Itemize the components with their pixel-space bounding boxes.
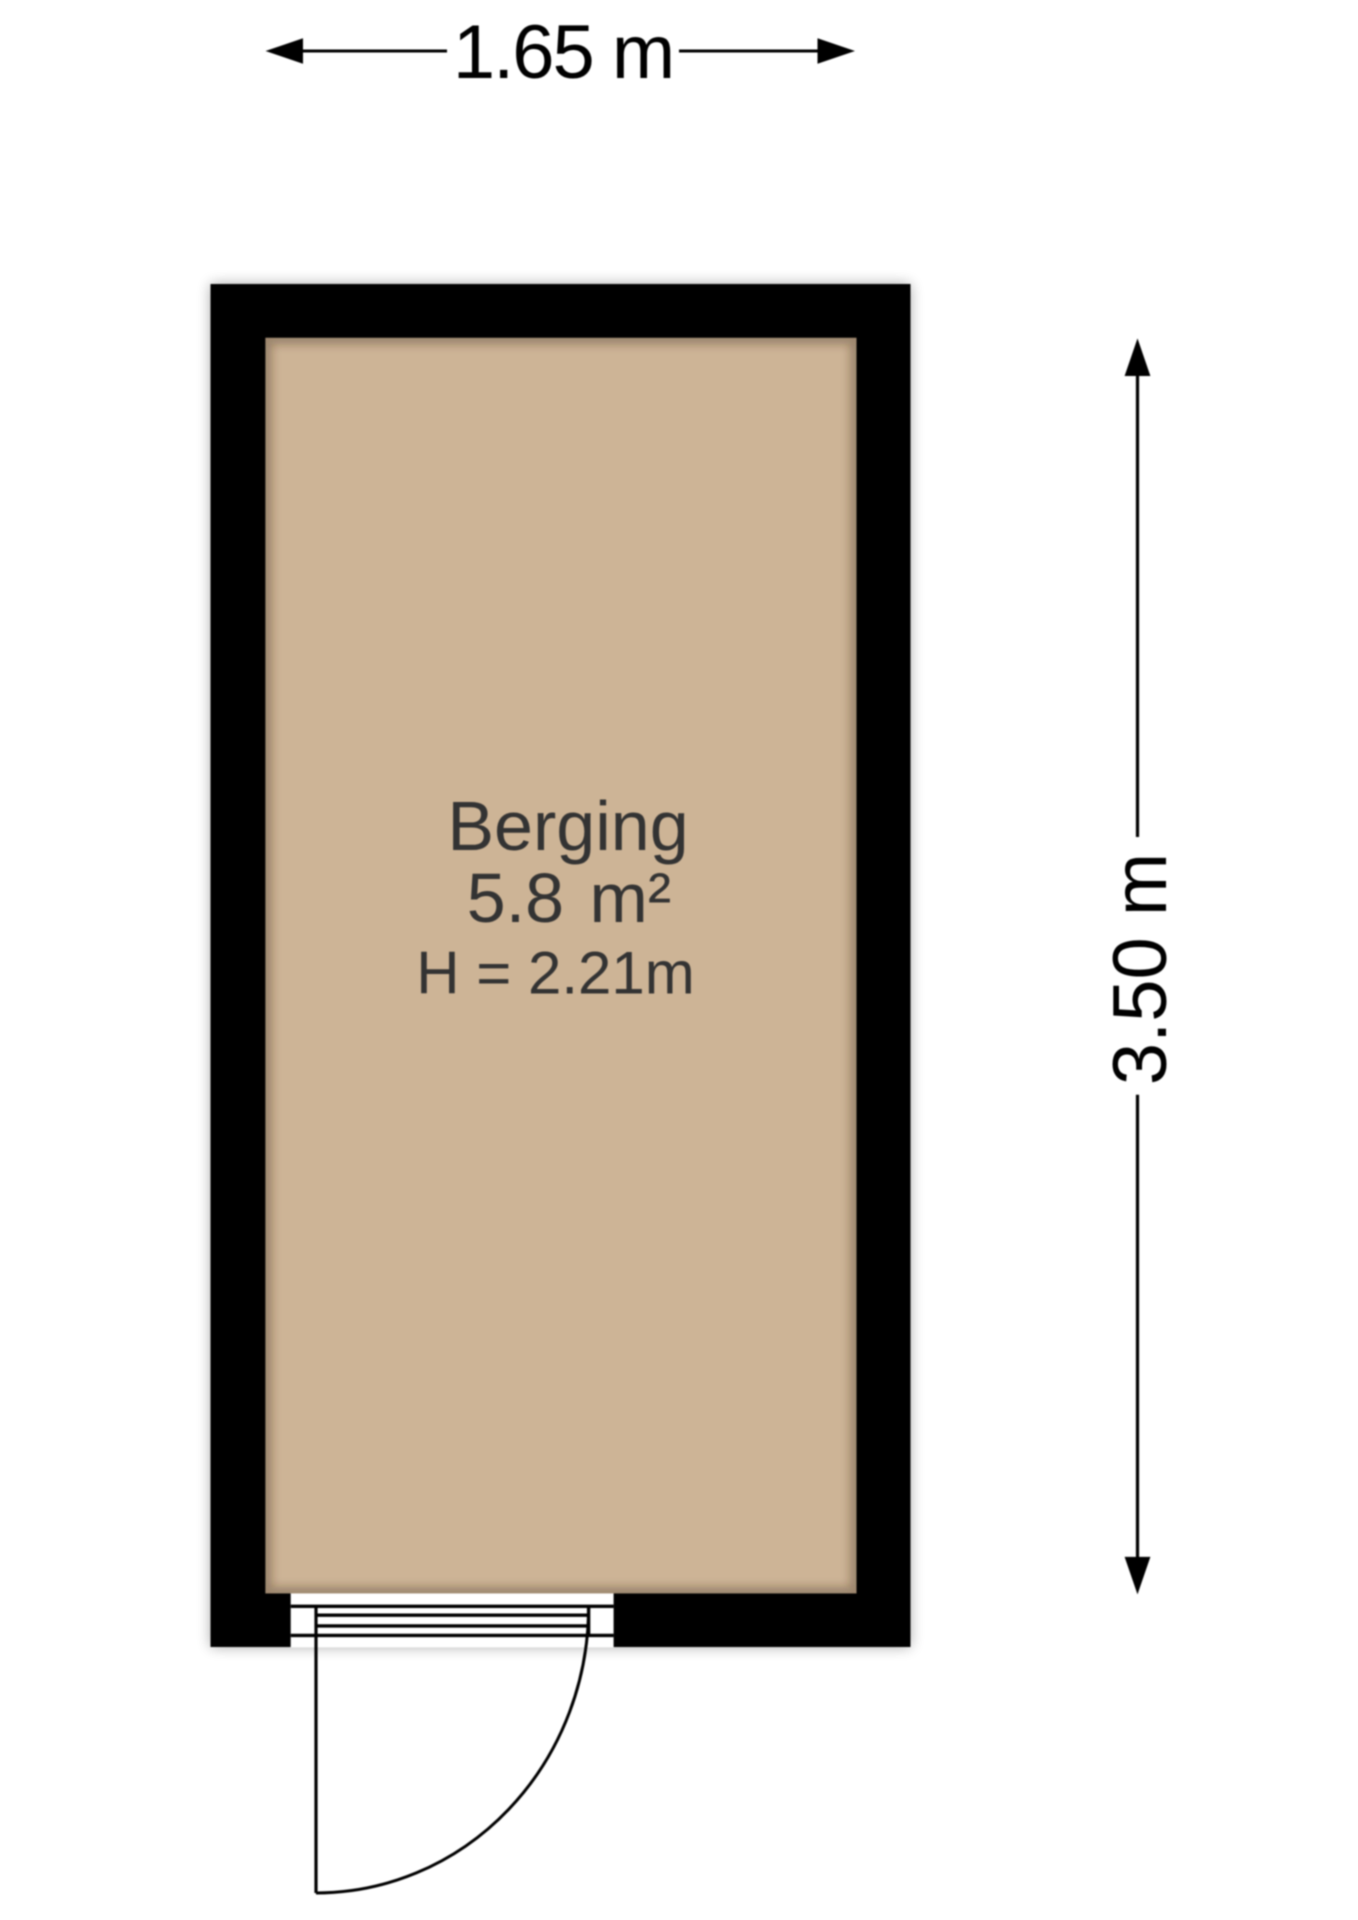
svg-text:3.50 m: 3.50 m bbox=[1098, 853, 1183, 1085]
svg-text:5.8 m²: 5.8 m² bbox=[467, 859, 671, 937]
svg-text:Berging: Berging bbox=[447, 787, 688, 865]
svg-text:1.65 m: 1.65 m bbox=[453, 10, 673, 95]
svg-text:H = 2.21m: H = 2.21m bbox=[416, 940, 694, 1007]
